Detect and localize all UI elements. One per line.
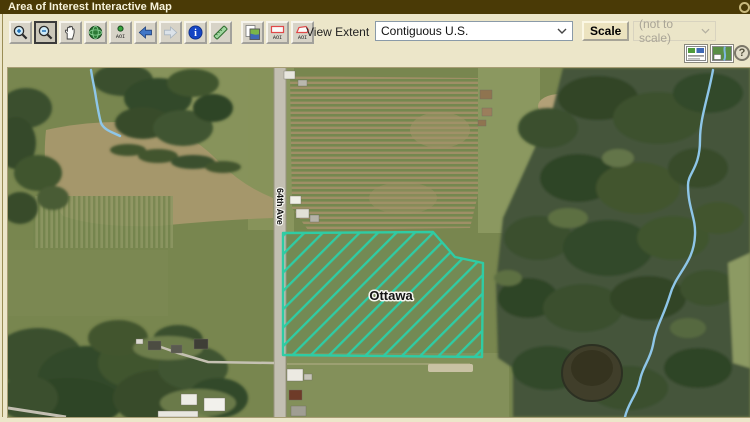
- chevron-down-icon: [557, 28, 567, 34]
- window-title-text: Area of Interest Interactive Map: [8, 1, 172, 13]
- measure-ruler-icon: [212, 24, 229, 41]
- identify-button[interactable]: i: [184, 21, 207, 44]
- next-view-button[interactable]: [159, 21, 182, 44]
- aoi-place-label: Ottawa: [369, 288, 413, 303]
- world-extent-button[interactable]: [84, 21, 107, 44]
- app: { "window": { "title": "Area of Interest…: [0, 0, 750, 417]
- panel-edge-line: [2, 0, 3, 417]
- legend-panel-icon: [686, 46, 706, 61]
- aoi-rectangle-icon: AOI: [269, 24, 286, 41]
- pan-button[interactable]: [59, 21, 82, 44]
- measure-button[interactable]: [209, 21, 232, 44]
- globe-icon: [87, 24, 104, 41]
- zoom-to-aoi-label: AOI: [116, 34, 125, 40]
- identify-glyph: i: [194, 28, 197, 39]
- map-panel-button[interactable]: [710, 44, 734, 63]
- scale-button[interactable]: Scale: [582, 21, 629, 41]
- zoom-out-icon: [37, 24, 54, 41]
- pond: [562, 345, 622, 401]
- zoom-to-aoi-icon: AOI: [112, 24, 129, 41]
- legend-panel-button[interactable]: [684, 44, 708, 63]
- map-viewport[interactable]: Ottawa 64th Ave: [8, 68, 750, 417]
- help-icon[interactable]: ?: [734, 45, 750, 61]
- view-extent-label: View Extent: [306, 25, 369, 39]
- zoom-to-aoi-button[interactable]: AOI: [109, 21, 132, 44]
- previous-view-arrow-icon: [137, 24, 154, 41]
- identify-info-icon: i: [187, 24, 204, 41]
- previous-view-button[interactable]: [134, 21, 157, 44]
- define-aoi-rectangle-button[interactable]: AOI: [266, 21, 289, 44]
- map-panel-icon: [712, 46, 732, 61]
- aoi-rectangle-label: AOI: [273, 35, 282, 41]
- next-view-arrow-icon: [162, 24, 179, 41]
- copy-map-button[interactable]: [241, 21, 264, 44]
- window-title: Area of Interest Interactive Map: [0, 0, 750, 14]
- titlebar-help-icon[interactable]: [739, 2, 750, 13]
- aerial-map[interactable]: Ottawa 64th Ave: [8, 68, 750, 417]
- view-extent-select[interactable]: Contiguous U.S.: [375, 21, 573, 41]
- view-extent-value: Contiguous U.S.: [381, 24, 468, 38]
- road-name-label: 64th Ave: [275, 188, 285, 225]
- pan-hand-icon: [62, 24, 79, 41]
- zoom-in-button[interactable]: [9, 21, 32, 44]
- scale-status-text: (not to scale): [639, 17, 701, 45]
- copy-map-icon: [244, 24, 261, 41]
- zoom-out-button[interactable]: [34, 21, 57, 44]
- zoom-in-icon: [12, 24, 29, 41]
- scale-status-select[interactable]: (not to scale): [633, 21, 716, 41]
- chevron-down-icon: [701, 28, 710, 34]
- map-toolbar: AOI i: [9, 21, 314, 44]
